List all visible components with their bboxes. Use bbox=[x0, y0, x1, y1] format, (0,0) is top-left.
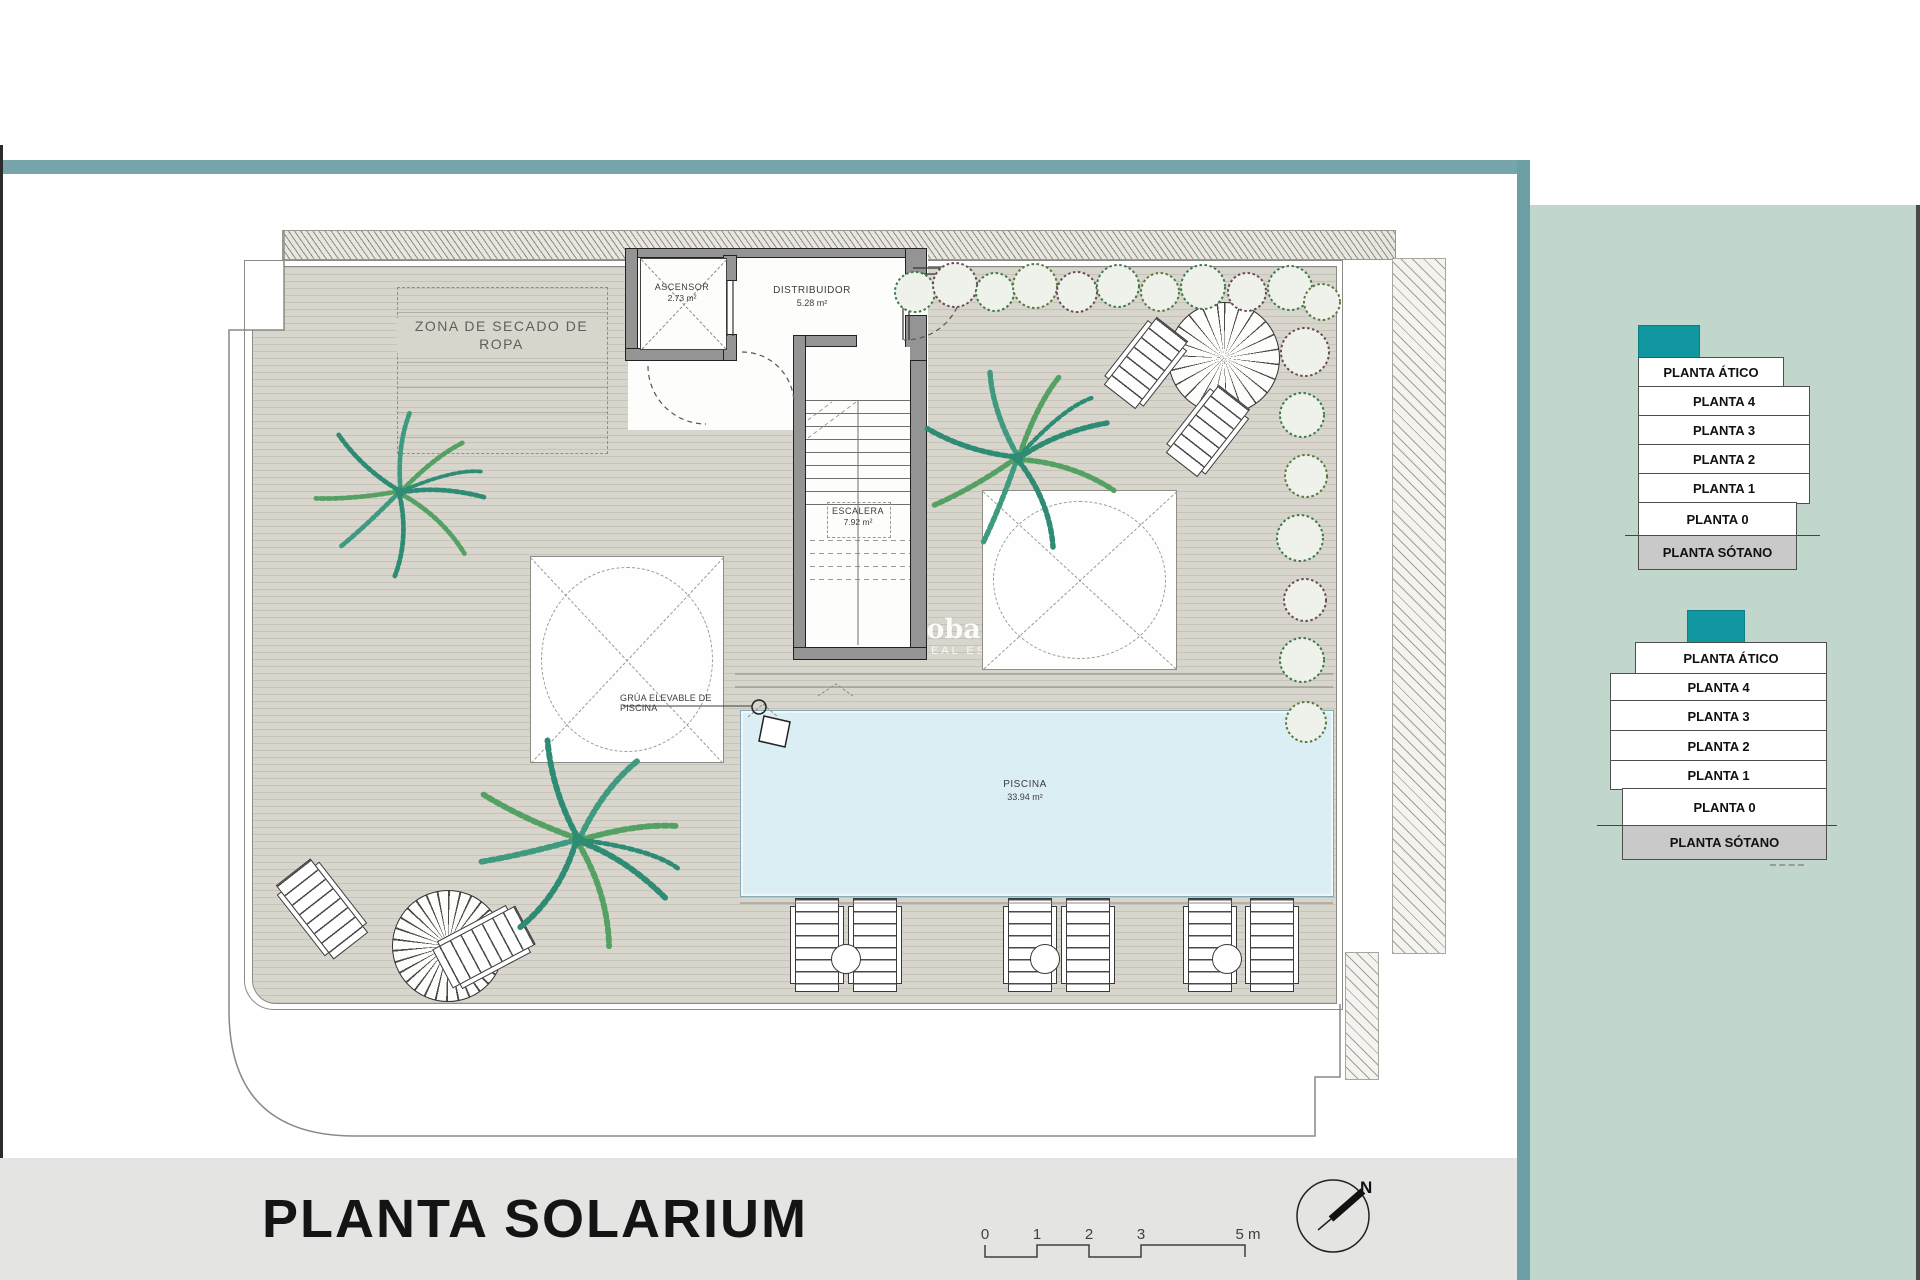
level-bar-3: PLANTA 3 bbox=[1610, 700, 1827, 732]
right-edge-line bbox=[1916, 205, 1920, 1280]
left-edge-line bbox=[0, 145, 3, 1158]
stair-treads-dashed bbox=[806, 540, 910, 580]
level-bar-atico: PLANTA ÁTICO bbox=[1638, 357, 1784, 388]
sun-lounger bbox=[1066, 898, 1110, 992]
hall-area: 5.28 m² bbox=[752, 298, 872, 309]
pool-ball bbox=[1212, 944, 1242, 974]
scale-tick-0: 0 bbox=[963, 1226, 1007, 1243]
vertical-teal-divider bbox=[1517, 160, 1530, 1280]
top-teal-band bbox=[0, 160, 1529, 174]
wall bbox=[625, 248, 917, 258]
scale-tick-1: 1 bbox=[1015, 1226, 1059, 1243]
level-bar-sotano: PLANTA SÓTANO bbox=[1638, 535, 1797, 570]
level-bar-atico: PLANTA ÁTICO bbox=[1635, 642, 1827, 675]
scale-tick-5m: 5 m bbox=[1226, 1226, 1270, 1243]
wall bbox=[910, 360, 927, 660]
stack-teal-cap bbox=[1638, 325, 1700, 359]
level-bar-1: PLANTA 1 bbox=[1610, 760, 1827, 790]
level-bar-4: PLANTA 4 bbox=[1610, 673, 1827, 702]
stair-name: ESCALERA bbox=[807, 506, 909, 517]
skylight-left bbox=[530, 556, 724, 763]
drying-zone-label: ZONA DE SECADO DE ROPA bbox=[397, 318, 606, 353]
skylight-right bbox=[982, 490, 1177, 670]
sun-lounger bbox=[1250, 898, 1294, 992]
wall bbox=[905, 248, 927, 278]
sun-lounger bbox=[853, 898, 897, 992]
level-bar-0: PLANTA 0 bbox=[1638, 502, 1797, 537]
level-bar-1: PLANTA 1 bbox=[1638, 473, 1810, 504]
elevator-name: ASCENSOR bbox=[637, 282, 727, 293]
drying-zone-box bbox=[397, 287, 608, 454]
hall-label: DISTRIBUIDOR 5.28 m² bbox=[752, 285, 872, 309]
hall-name: DISTRIBUIDOR bbox=[752, 285, 872, 298]
level-bar-2: PLANTA 2 bbox=[1610, 730, 1827, 762]
pool-ball bbox=[831, 944, 861, 974]
level-bar-0: PLANTA 0 bbox=[1622, 788, 1827, 827]
elevator-label: ASCENSOR 2.73 m² bbox=[637, 282, 727, 304]
stair-area: 7.92 m² bbox=[807, 517, 909, 528]
stair-treads bbox=[806, 400, 910, 505]
pool-ball bbox=[1030, 944, 1060, 974]
pool-name: PISCINA bbox=[965, 779, 1085, 792]
pool-area: 33.94 m² bbox=[965, 792, 1085, 803]
hatched-strip-right bbox=[1392, 258, 1446, 954]
level-bar-4: PLANTA 4 bbox=[1638, 386, 1810, 417]
floorplan-page: ZONA DE SECADO DE ROPA Global S REAL EST… bbox=[0, 0, 1920, 1280]
page-title: PLANTA SOLARIUM bbox=[262, 1188, 808, 1250]
stack-teal-cap bbox=[1687, 610, 1745, 644]
elevator-area: 2.73 m² bbox=[637, 293, 727, 304]
level-bar-sotano: PLANTA SÓTANO bbox=[1622, 825, 1827, 860]
wall bbox=[625, 248, 638, 360]
stair-label: ESCALERA 7.92 m² bbox=[807, 506, 909, 528]
sun-lounger bbox=[795, 898, 839, 992]
hatched-strip-bottom-right bbox=[1345, 952, 1379, 1080]
north-label: N bbox=[1360, 1178, 1372, 1198]
wall bbox=[793, 647, 927, 660]
pool bbox=[740, 710, 1334, 897]
level-bar-3: PLANTA 3 bbox=[1638, 415, 1810, 446]
stack-footnote-dashes bbox=[1770, 864, 1804, 866]
scale-tick-2: 2 bbox=[1067, 1226, 1111, 1243]
elevator-cell bbox=[640, 258, 727, 350]
level-bar-2: PLANTA 2 bbox=[1638, 444, 1810, 475]
pool-lift-label: GRÚA ELEVABLE DE PISCINA bbox=[620, 693, 745, 713]
pool-label: PISCINA 33.94 m² bbox=[965, 779, 1085, 803]
wall bbox=[793, 335, 806, 660]
scale-tick-3: 3 bbox=[1119, 1226, 1163, 1243]
